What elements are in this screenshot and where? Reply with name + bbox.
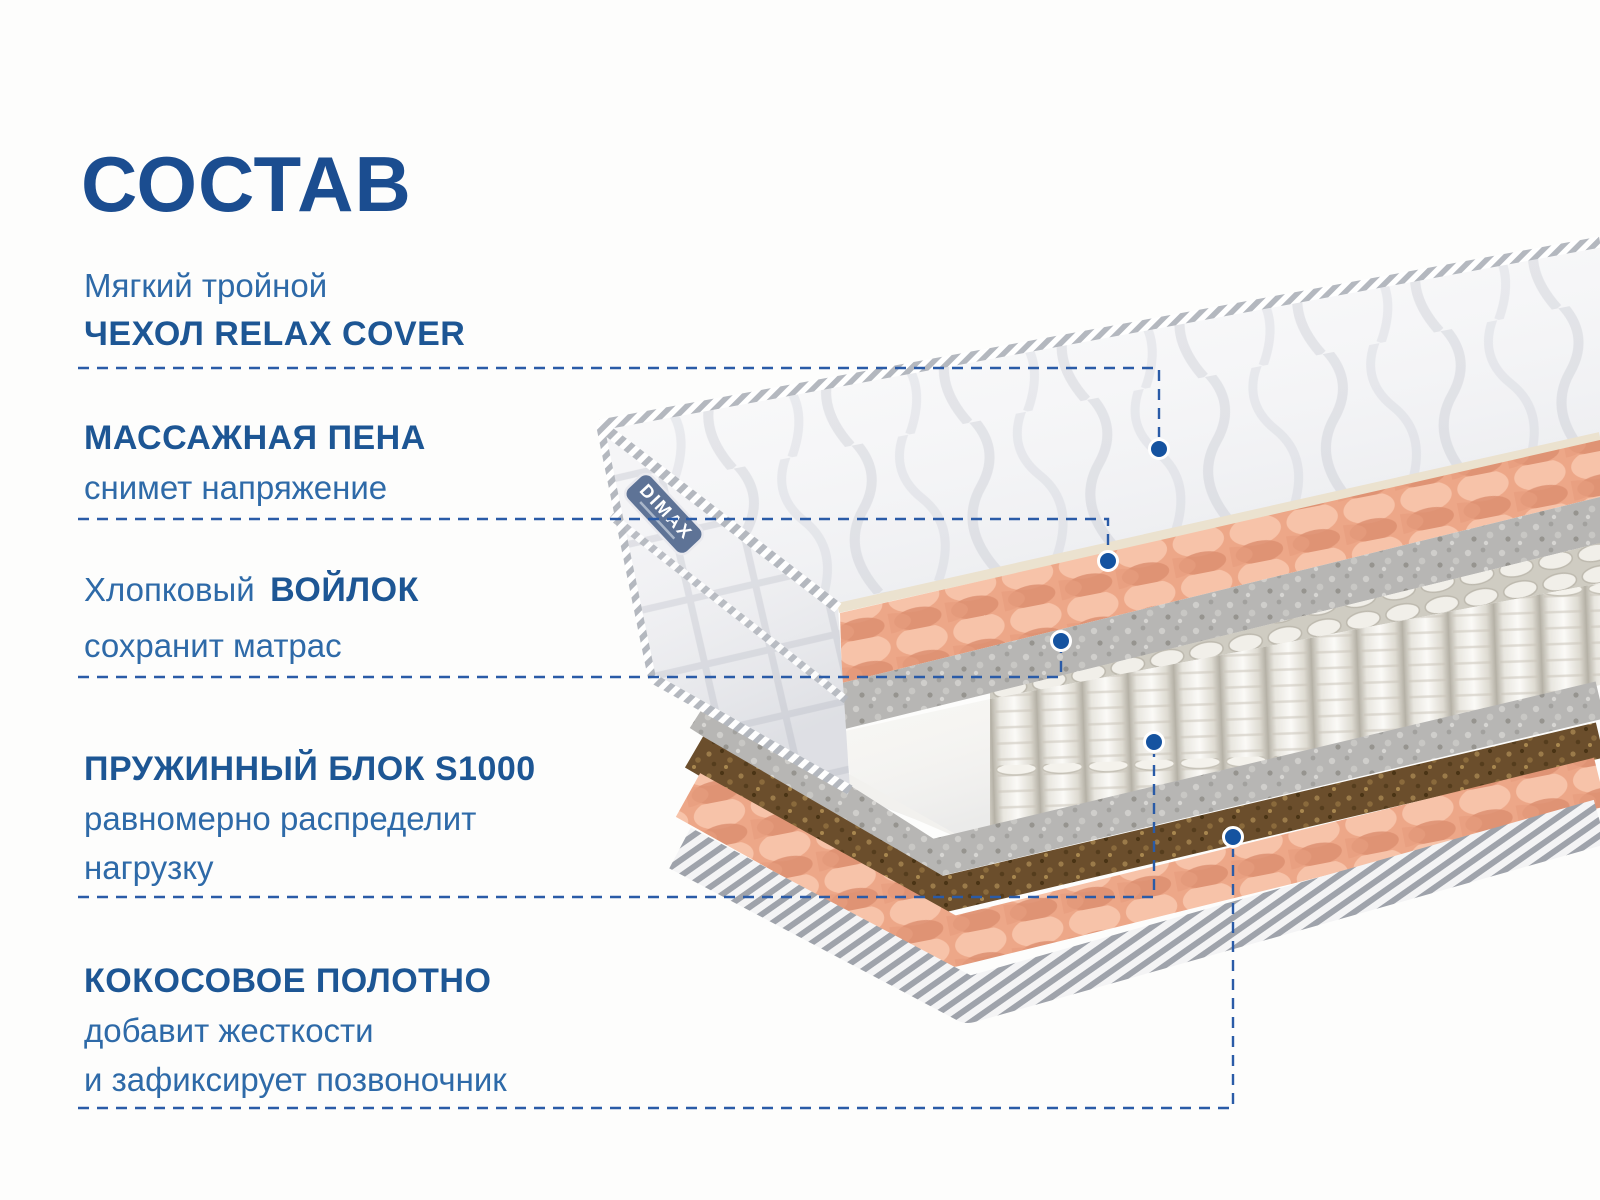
annotation-coconut-line1: КОКОСОВОЕ ПОЛОТНО [84,957,507,1006]
annotation-coconut: КОКОСОВОЕ ПОЛОТНО добавит жесткости и за… [84,957,507,1104]
annotation-springs: ПРУЖИННЫЙ БЛОК S1000 равномерно распреде… [84,745,536,892]
annotation-foam-line1: МАССАЖНАЯ ПЕНА [84,414,426,463]
annotation-springs-line2: равномерно распределит [84,794,536,843]
annotation-coconut-line2: добавит жесткости [84,1006,507,1055]
connector-dot-cover [1150,440,1169,459]
annotation-felt-line2: сохранит матрас [84,621,419,670]
infographic-canvas: DIMAX СОСТАВ Мягкий тройной ЧЕХОЛ RELAX … [0,0,1600,1200]
connector-dot-coconut [1224,828,1243,847]
annotation-felt: Хлопковый ВОЙЛОК сохранит матрас [84,565,419,670]
annotation-springs-line3: нагрузку [84,843,536,892]
annotation-cover-line2: ЧЕХОЛ RELAX COVER [84,310,465,359]
annotation-foam-line2: снимет напряжение [84,463,426,512]
annotation-felt-bold: ВОЙЛОК [270,571,419,609]
connector-dot-foam [1099,552,1118,571]
annotation-felt-prefix: Хлопковый [84,571,255,608]
connector-dot-felt [1052,632,1071,651]
annotation-coconut-line3: и зафиксирует позвоночник [84,1055,507,1104]
page-title: СОСТАВ [81,139,412,230]
annotation-cover: Мягкий тройной ЧЕХОЛ RELAX COVER [84,261,465,359]
connector-dot-springs [1145,733,1164,752]
annotation-springs-line1: ПРУЖИННЫЙ БЛОК S1000 [84,745,536,794]
annotation-foam: МАССАЖНАЯ ПЕНА снимет напряжение [84,414,426,512]
annotation-cover-line1: Мягкий тройной [84,261,465,310]
